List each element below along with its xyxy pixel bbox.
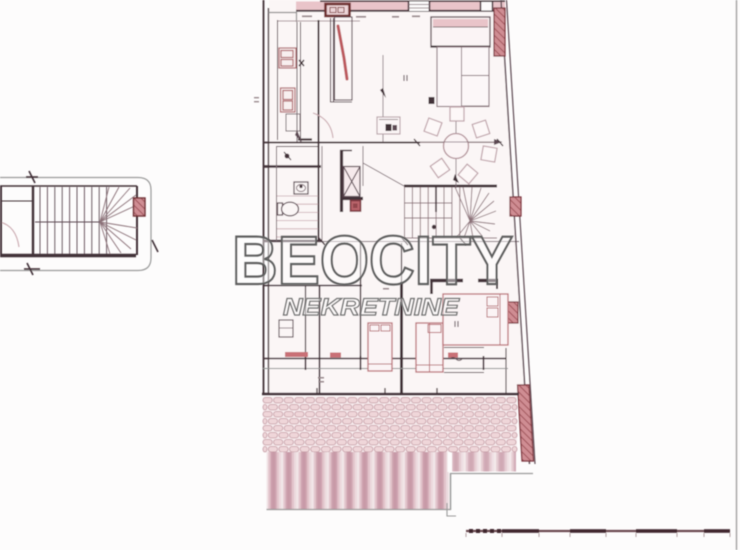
svg-text:NEKRETNINE: NEKRETNINE (283, 294, 460, 321)
svg-text:BEOCITY: BEOCITY (232, 222, 513, 299)
